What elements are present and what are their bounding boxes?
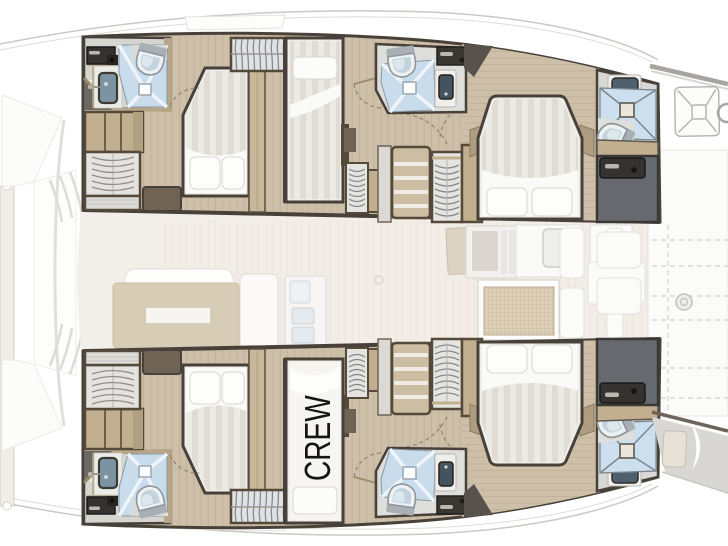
svg-text:CREW: CREW [298,395,338,481]
